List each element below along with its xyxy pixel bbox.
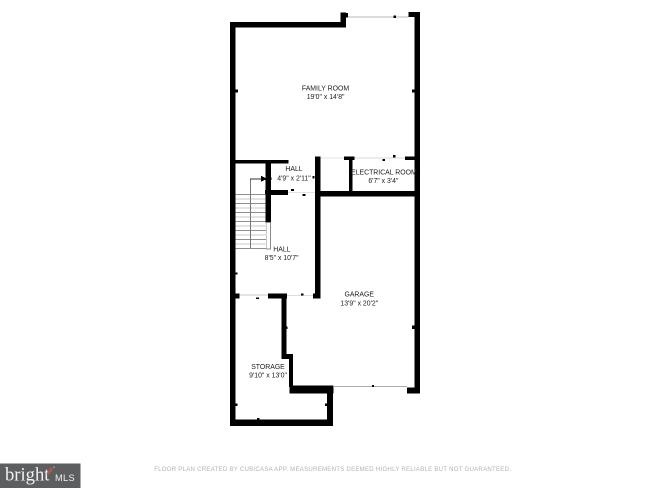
svg-text:FLOOR PLAN CREATED BY CUBICASA: FLOOR PLAN CREATED BY CUBICASA APP. MEAS… [154, 466, 511, 473]
svg-text:GARAGE: GARAGE [344, 291, 374, 298]
svg-text:STORAGE: STORAGE [251, 364, 285, 371]
svg-text:19'0" x 14'8": 19'0" x 14'8" [307, 94, 345, 101]
svg-text:6'7" x 3'4": 6'7" x 3'4" [368, 178, 399, 185]
svg-text:HALL: HALL [285, 166, 302, 173]
svg-text:FAMILY ROOM: FAMILY ROOM [302, 86, 349, 93]
svg-text:MLS: MLS [55, 473, 75, 483]
svg-text:bright: bright [5, 465, 50, 486]
svg-text:9'10" x 13'0": 9'10" x 13'0" [249, 373, 287, 380]
svg-text:4'9" x 2'11": 4'9" x 2'11" [277, 175, 311, 182]
svg-text:8'5" x 10'7": 8'5" x 10'7" [265, 255, 300, 262]
svg-text:ELECTRICAL ROOM: ELECTRICAL ROOM [351, 169, 417, 176]
svg-text:13'9" x 20'2": 13'9" x 20'2" [340, 300, 378, 307]
svg-text:HALL: HALL [273, 247, 290, 254]
